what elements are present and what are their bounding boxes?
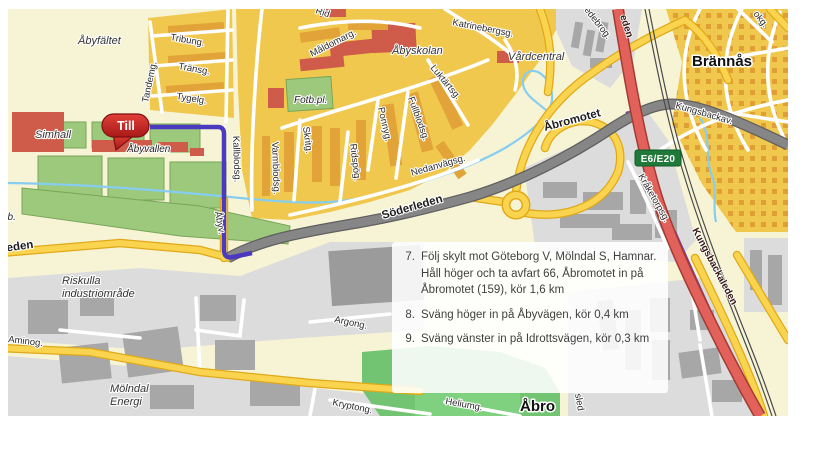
- directions-panel: 7.Följ skylt mot Göteborg V, Mölndal S, …: [392, 242, 668, 393]
- step-text: Sväng vänster in på Idrottsvägen, kör 0,…: [421, 331, 660, 348]
- map-label-riskulla: Riskulla: [62, 275, 101, 287]
- highway-badge: E6/E20: [635, 150, 681, 166]
- map-label-fotb-pl: Fotb.pl.: [294, 95, 327, 106]
- step-number: 8.: [400, 307, 415, 324]
- destination-marker-label: Till: [117, 119, 135, 133]
- map-label-vardcentral: Vårdcentral: [508, 51, 565, 63]
- step-number: 7.: [400, 249, 415, 299]
- map-label-industriomrade: industriområde: [62, 288, 135, 300]
- map-label-abyvallen: Åbyvallen: [126, 142, 171, 155]
- map-label-tb-clipped: t.b.: [2, 212, 16, 223]
- map-label-abyfaltet: Åbyfältet: [77, 34, 122, 47]
- direction-step-9: 9.Sväng vänster in på Idrottsvägen, kör …: [400, 331, 660, 348]
- map-label-molndal: Mölndal: [110, 383, 149, 395]
- map-label-abro: Åbro: [520, 398, 555, 415]
- highway-badge-label: E6/E20: [641, 154, 676, 165]
- direction-step-8: 8.Sväng höger in på Åbyvägen, kör 0,4 km: [400, 307, 660, 324]
- map-label-simhall: Simhall: [35, 129, 72, 141]
- map-label-brannas: Brännås: [692, 53, 752, 70]
- step-text: Sväng höger in på Åbyvägen, kör 0,4 km: [421, 307, 660, 324]
- map-label-energi: Energi: [110, 396, 142, 408]
- map-label-varmblodsg: Varmblodsg.: [269, 142, 282, 195]
- step-text: Följ skylt mot Göteborg V, Mölndal S, Ha…: [421, 249, 660, 299]
- step-number: 9.: [400, 331, 415, 348]
- map-label-kallblodsg: Kallblodsg.: [230, 136, 243, 183]
- direction-step-7: 7.Följ skylt mot Göteborg V, Mölndal S, …: [400, 249, 660, 299]
- map-label-abyskolan: Åbyskolan: [391, 44, 443, 57]
- page: { "map": { "marker": { "label": "Till" }…: [0, 0, 819, 460]
